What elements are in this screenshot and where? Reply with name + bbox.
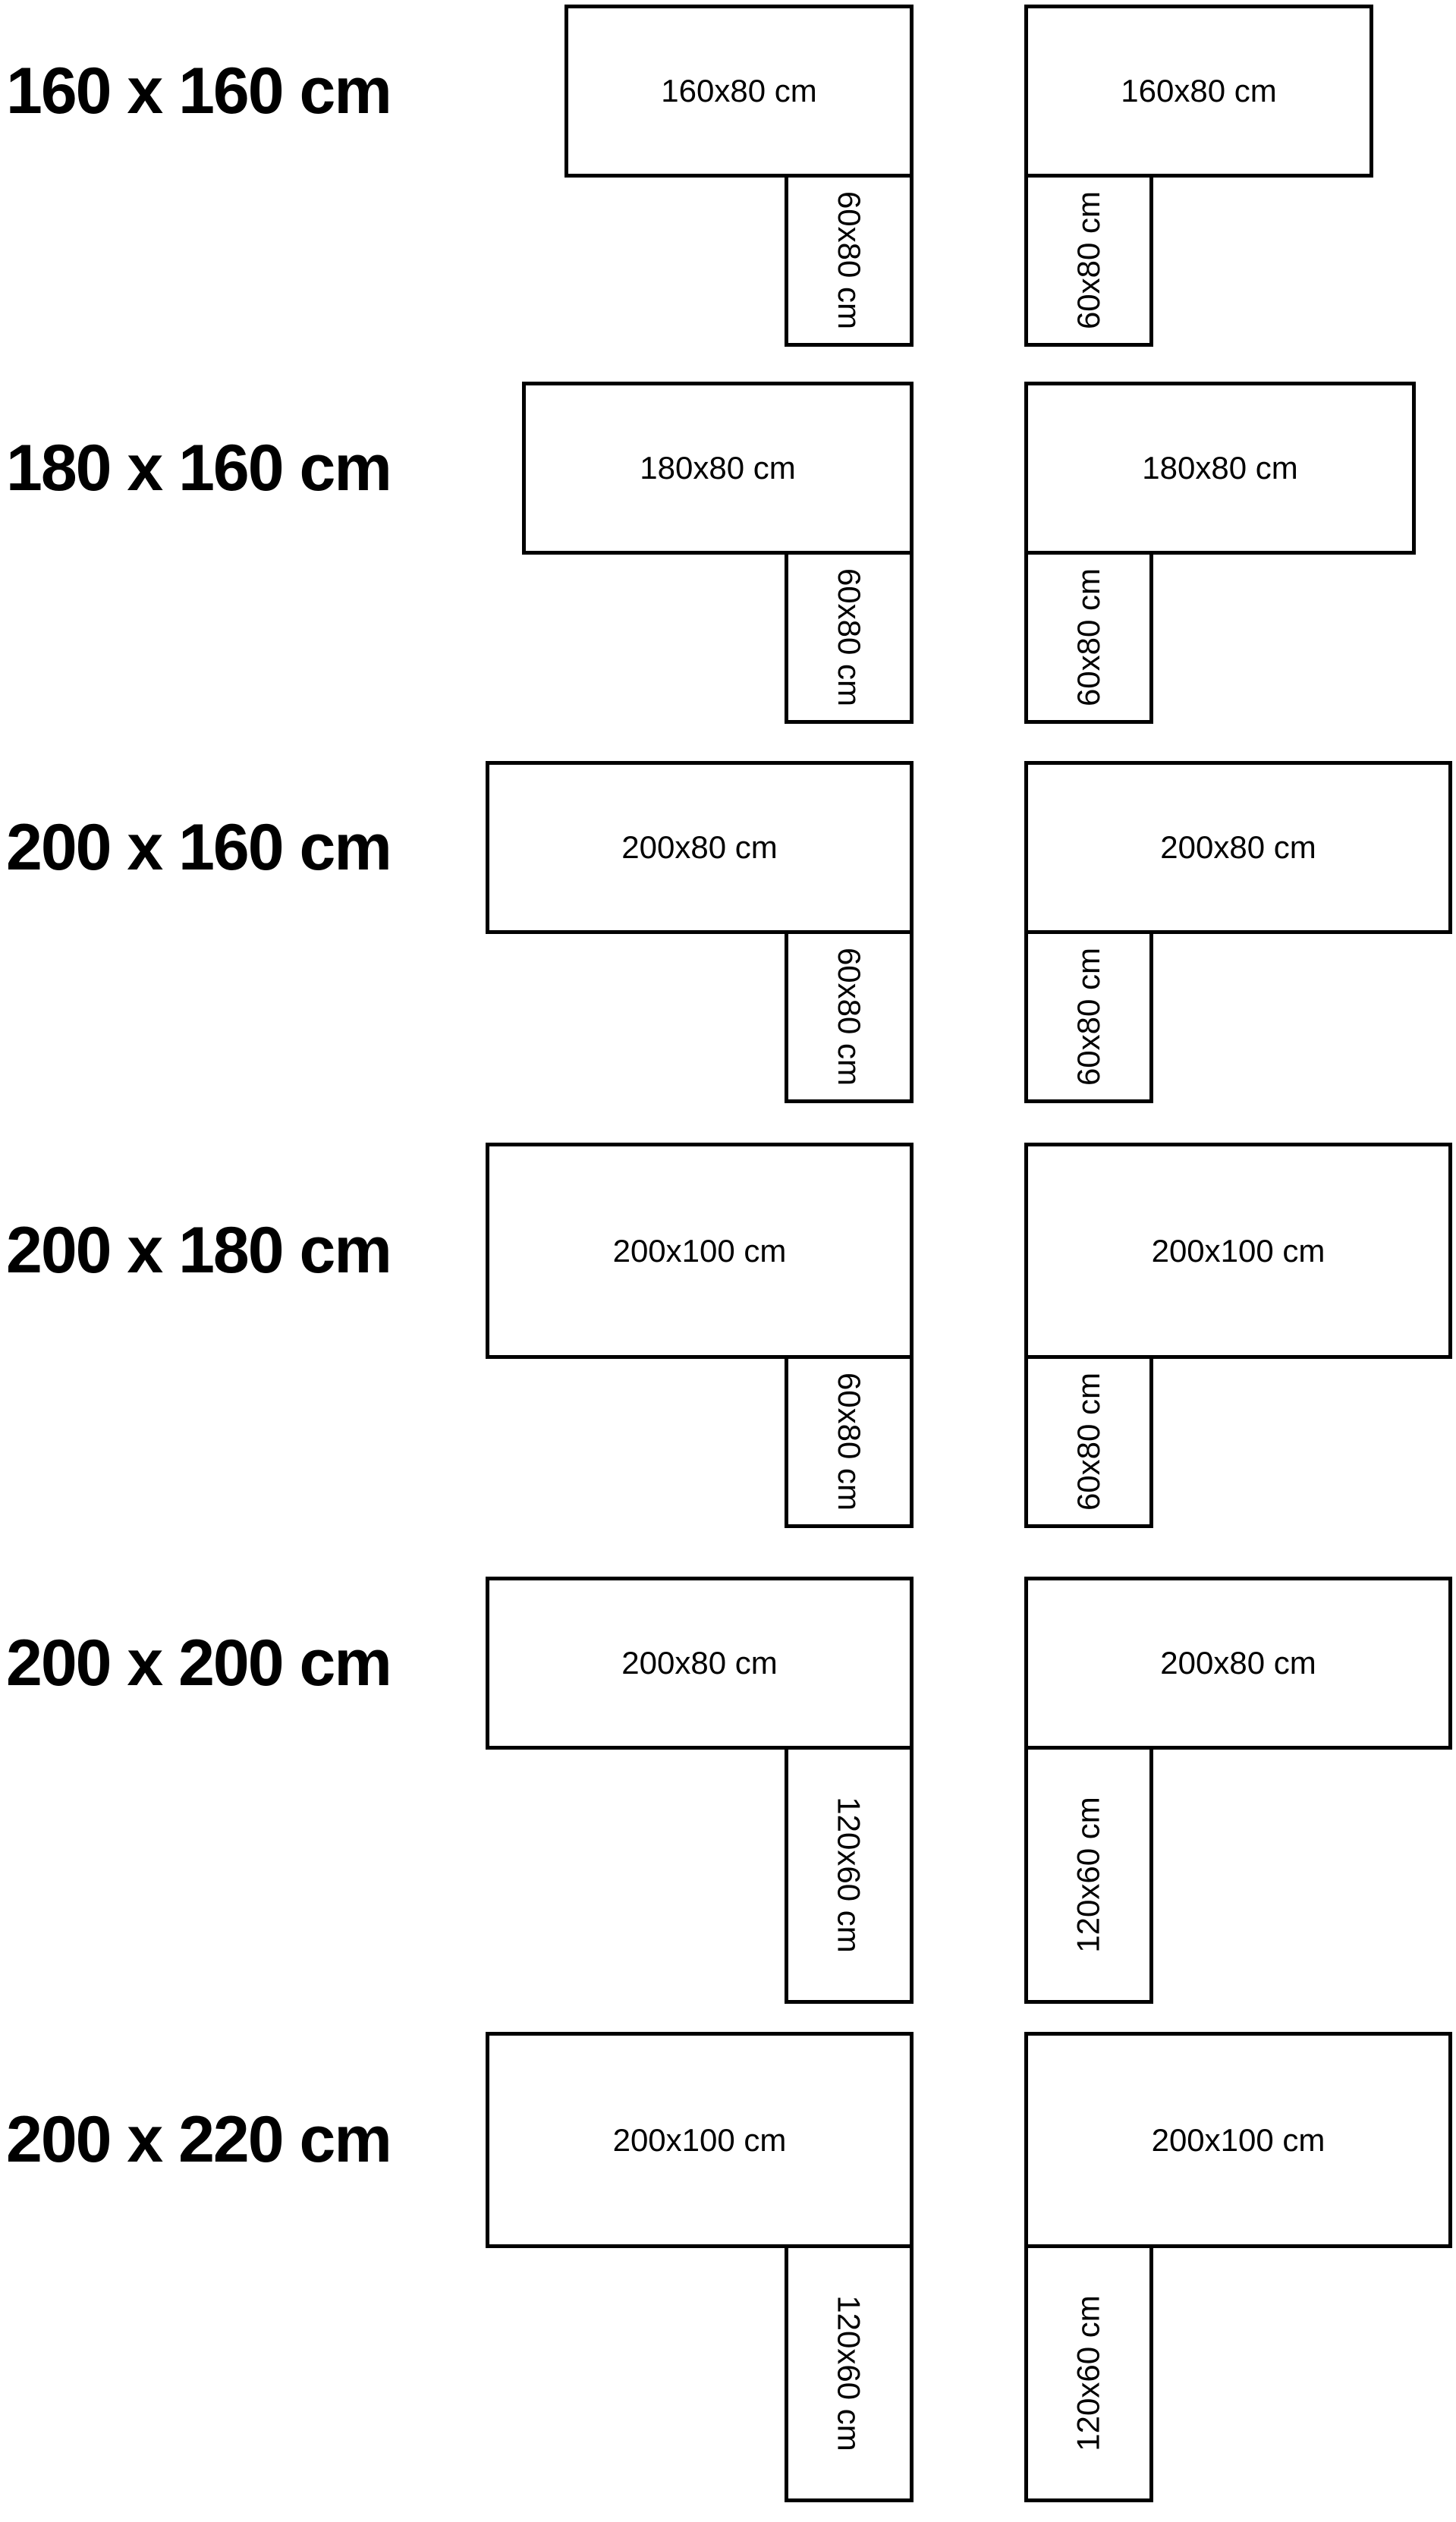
desk-top-rect-left: 180x80 cm bbox=[522, 382, 914, 555]
row-size-label: 200 x 160 cm bbox=[6, 813, 391, 882]
desk-top-rect-right: 160x80 cm bbox=[1024, 5, 1373, 178]
desk-top-dimension: 160x80 cm bbox=[1121, 73, 1276, 109]
desk-side-rect-left: 120x60 cm bbox=[785, 1746, 914, 2004]
desk-side-dimension: 60x80 cm bbox=[1071, 191, 1107, 329]
desk-top-dimension: 200x100 cm bbox=[613, 2122, 787, 2159]
desk-top-dimension: 200x80 cm bbox=[1160, 1645, 1316, 1681]
desk-top-rect-right: 200x80 cm bbox=[1024, 1577, 1452, 1750]
desk-side-dimension: 120x60 cm bbox=[1071, 1797, 1107, 1952]
desk-top-dimension: 200x100 cm bbox=[1152, 2122, 1325, 2159]
desk-top-rect-left: 200x80 cm bbox=[486, 1577, 914, 1750]
row-size-label: 180 x 160 cm bbox=[6, 434, 391, 502]
desk-side-rect-left: 120x60 cm bbox=[785, 2244, 914, 2502]
desk-top-dimension: 180x80 cm bbox=[1142, 450, 1297, 486]
desk-side-dimension: 60x80 cm bbox=[831, 1373, 867, 1511]
desk-top-dimension: 200x100 cm bbox=[613, 1233, 787, 1269]
desk-side-dimension: 60x80 cm bbox=[831, 568, 867, 706]
desk-top-rect-left: 200x80 cm bbox=[486, 761, 914, 934]
desk-side-rect-right: 60x80 cm bbox=[1024, 1355, 1153, 1528]
desk-side-dimension: 120x60 cm bbox=[831, 1797, 867, 1952]
desk-top-rect-right: 200x100 cm bbox=[1024, 1143, 1452, 1359]
desk-side-rect-left: 60x80 cm bbox=[785, 1355, 914, 1528]
desk-side-rect-left: 60x80 cm bbox=[785, 174, 914, 347]
desk-side-dimension: 120x60 cm bbox=[1071, 2295, 1107, 2451]
desk-side-dimension: 60x80 cm bbox=[1071, 948, 1107, 1086]
desk-top-rect-right: 180x80 cm bbox=[1024, 382, 1416, 555]
desk-top-rect-left: 200x100 cm bbox=[486, 1143, 914, 1359]
desk-side-rect-right: 120x60 cm bbox=[1024, 1746, 1153, 2004]
desk-side-rect-right: 120x60 cm bbox=[1024, 2244, 1153, 2502]
desk-side-rect-right: 60x80 cm bbox=[1024, 930, 1153, 1103]
desk-side-dimension: 60x80 cm bbox=[1071, 1373, 1107, 1511]
desk-side-dimension: 60x80 cm bbox=[1071, 568, 1107, 706]
desk-size-diagram-sheet: 160 x 160 cm 160x80 cm 60x80 cm 160x80 c… bbox=[0, 0, 1456, 2522]
desk-top-dimension: 160x80 cm bbox=[661, 73, 816, 109]
desk-top-rect-right: 200x80 cm bbox=[1024, 761, 1452, 934]
desk-side-rect-left: 60x80 cm bbox=[785, 551, 914, 724]
row-size-label: 200 x 200 cm bbox=[6, 1629, 391, 1697]
row-size-label: 200 x 220 cm bbox=[6, 2105, 391, 2174]
row-size-label: 200 x 180 cm bbox=[6, 1216, 391, 1285]
desk-side-rect-right: 60x80 cm bbox=[1024, 174, 1153, 347]
desk-side-dimension: 60x80 cm bbox=[831, 191, 867, 329]
desk-side-rect-right: 60x80 cm bbox=[1024, 551, 1153, 724]
desk-top-rect-left: 160x80 cm bbox=[564, 5, 914, 178]
desk-top-dimension: 180x80 cm bbox=[640, 450, 795, 486]
desk-top-dimension: 200x100 cm bbox=[1152, 1233, 1325, 1269]
desk-top-dimension: 200x80 cm bbox=[1160, 829, 1316, 866]
desk-side-dimension: 120x60 cm bbox=[831, 2295, 867, 2451]
desk-top-rect-right: 200x100 cm bbox=[1024, 2032, 1452, 2248]
row-size-label: 160 x 160 cm bbox=[6, 57, 391, 125]
desk-top-dimension: 200x80 cm bbox=[621, 1645, 777, 1681]
desk-side-dimension: 60x80 cm bbox=[831, 948, 867, 1086]
desk-top-rect-left: 200x100 cm bbox=[486, 2032, 914, 2248]
desk-top-dimension: 200x80 cm bbox=[621, 829, 777, 866]
desk-side-rect-left: 60x80 cm bbox=[785, 930, 914, 1103]
